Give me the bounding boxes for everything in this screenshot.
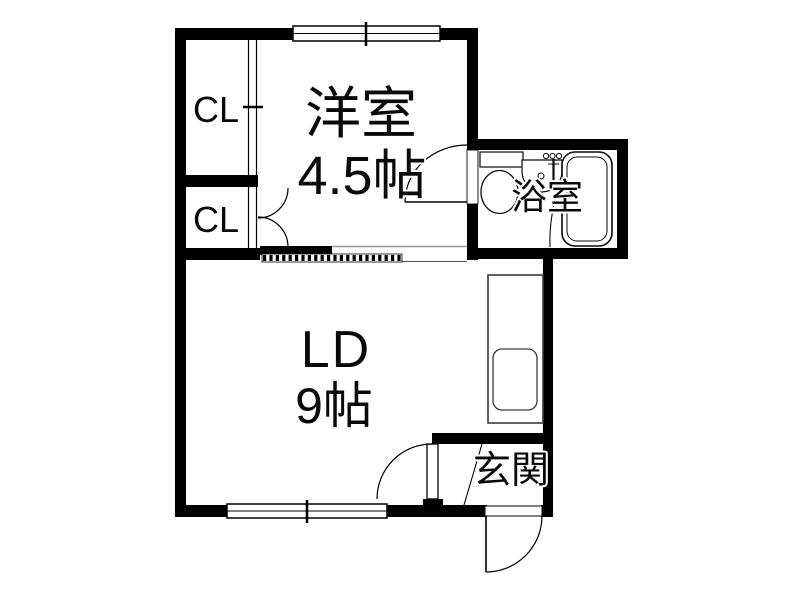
bathroom-label: 浴室 xyxy=(511,179,583,215)
wall-mid-horizontal xyxy=(175,248,260,260)
window-top xyxy=(293,22,440,46)
closets xyxy=(243,40,288,248)
window-bottom xyxy=(227,500,387,523)
door-arc-closet-bottom-leaf xyxy=(258,217,288,247)
wall-bath-top xyxy=(467,139,628,150)
door-leaf-genkan-inner xyxy=(427,444,438,499)
wall-left xyxy=(175,28,186,517)
sliding-door-track xyxy=(262,254,402,262)
wall-closet-divider xyxy=(175,175,258,187)
wall-bath-right xyxy=(617,139,628,259)
closet-upper-label: CL xyxy=(193,92,239,128)
living-dining-size: 9帖 xyxy=(295,381,373,431)
closet-lower-door-arcs xyxy=(258,188,288,247)
living-dining-label: LD xyxy=(301,324,371,376)
door-arc-genkan-inner xyxy=(377,444,432,499)
floor-plan-canvas: 洋室 4.5帖 CL CL 浴室 LD 9帖 玄関 xyxy=(0,0,800,600)
wall-western-right-upper xyxy=(467,28,478,150)
closet-lower-front xyxy=(249,187,257,248)
wall-bottom-left xyxy=(175,505,230,517)
genkan-inner-door xyxy=(377,444,438,499)
entrance-door xyxy=(485,506,542,572)
wall-genkan-door-stub xyxy=(423,499,443,517)
wall-genkan-top xyxy=(432,433,553,444)
entrance-label: 玄関 xyxy=(473,452,549,490)
entrance-threshold xyxy=(485,506,542,516)
kitchen-sink-icon xyxy=(493,349,537,410)
closet-upper-front xyxy=(243,40,263,175)
closet-lower-label: CL xyxy=(193,202,239,238)
door-arc-closet-top-leaf xyxy=(258,188,288,218)
door-arc-entrance xyxy=(486,516,542,572)
kitchen-counter xyxy=(488,275,543,423)
western-room-label: 洋室 xyxy=(305,86,417,142)
western-room-size: 4.5帖 xyxy=(297,149,426,203)
